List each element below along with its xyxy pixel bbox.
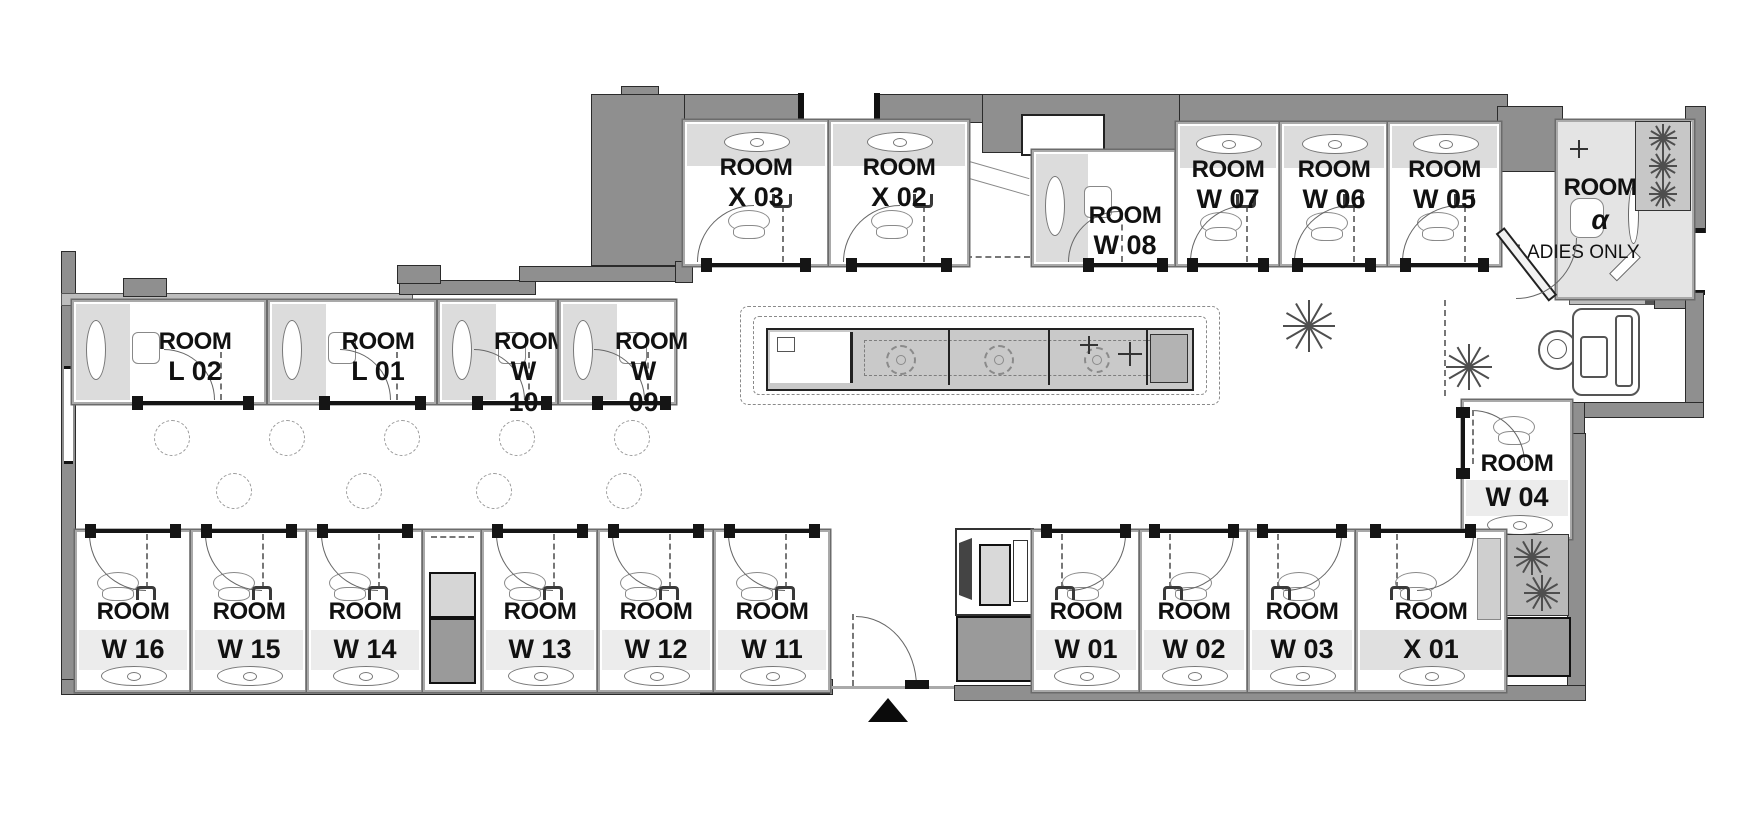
table-circle [216,473,252,509]
survey-cross-icon [1570,140,1588,158]
table-circle [614,420,650,456]
room-w01: ROOM W 01 [1032,530,1140,692]
table-circle [154,420,190,456]
room-label: ROOM [1282,156,1386,184]
utility-closet [423,530,482,692]
dashed-opening [431,536,474,538]
door-swing-arc [697,205,754,262]
desk-icon [724,132,790,152]
sliding-door-track [1407,263,1481,267]
sliding-door-track [92,529,175,533]
table-circle [476,473,512,509]
sliding-door-track [1156,529,1233,533]
room-number: W 05 [1390,184,1499,215]
room-label: ROOM [1464,450,1570,478]
room-w02: ROOM W 02 [1140,530,1248,692]
room-label: ROOM [1390,156,1499,184]
room-number: W 06 [1282,184,1386,215]
room-w03: ROOM W 03 [1248,530,1356,692]
desk-icon [101,666,167,686]
entrance-arrow-icon [868,698,908,722]
room-number: W 03 [1250,634,1354,665]
room-number: W 10 [494,356,553,418]
room-number: X 02 [831,182,967,213]
room-label: ROOM [193,598,305,626]
plant-icon [1446,344,1492,390]
door-leaf [669,534,671,588]
counter-divider [1048,330,1050,385]
ceiling-slope-line [966,177,1030,196]
room-w05: ROOM W 05 [1388,122,1501,266]
table-circle [384,420,420,456]
room-w04: ROOM W 04 [1462,400,1572,539]
door-swing-arc [843,205,900,262]
room-number: W 02 [1142,634,1246,665]
plant-icon [1283,300,1335,352]
desk-icon [452,320,472,380]
counter-end-cabinet [1150,334,1188,383]
desk-icon [1162,666,1228,686]
room-number: W 07 [1178,184,1278,215]
desk-icon [1302,134,1368,154]
desk-icon [217,666,283,686]
wall-step-band-2 [520,267,692,281]
room-label: ROOM [1178,156,1278,184]
desk-icon [740,666,806,686]
entrance-door-arc [856,616,917,687]
room-label: ROOM [77,598,189,626]
door-swing-arc [1069,534,1126,591]
utility-dark-box [956,616,1033,682]
faucet-icon [1080,336,1098,354]
burner-icon [984,345,1014,375]
room-label: ROOM [615,328,672,356]
counter-divider [948,330,950,385]
door-leaf [785,534,787,588]
door-leaf [146,534,148,588]
room-w12: ROOM W 12 [598,530,714,692]
room-label: ROOM [309,598,421,626]
room-number: W 11 [716,634,828,665]
locker-door [979,544,1011,606]
sliding-door-track [326,401,420,405]
speaker-panel-icon [959,538,972,600]
desk-icon [282,320,302,380]
room-w09: ROOM W 09 [559,300,676,404]
desk-icon [1270,666,1336,686]
desk-icon [86,320,106,380]
sliding-door-track [1299,263,1370,267]
room-number: W 08 [1078,230,1172,261]
door-leaf [553,534,555,588]
ceiling-slope-line [966,160,1030,179]
sliding-door-track [324,529,407,533]
utility-dark-box [1506,617,1571,677]
room-number: W 13 [484,634,596,665]
desk-icon [573,320,593,380]
room-label: ROOM [128,328,262,356]
room-w08: ROOM W 08 [1032,150,1176,266]
wall-vestibule-bottom [1572,403,1703,417]
door-swing-arc [1417,534,1474,591]
sliding-door-track [1090,263,1161,267]
door-leaf [1061,534,1063,588]
room-x02: ROOM X 02 [829,120,969,266]
room-l01: ROOM L 01 [268,300,436,404]
desk-icon [1045,176,1065,236]
desk-icon [1196,134,1262,154]
plant-icon [1520,575,1564,611]
room-w10: ROOM W 10 [438,300,557,404]
desk-icon [867,132,933,152]
room-label: ROOM [600,598,712,626]
desk-icon [1399,666,1465,686]
room-l02: ROOM L 02 [72,300,266,404]
sliding-door-track [499,529,582,533]
door-leaf [782,206,784,262]
wall-jog-block [1498,107,1562,171]
room-number: W 01 [1034,634,1138,665]
plant-icon [1643,180,1683,208]
desk-icon [624,666,690,686]
sliding-door-track [139,401,247,405]
wall-parapet-1 [124,279,166,296]
room-label: ROOM [831,154,967,182]
panel [1013,540,1028,602]
wall-parapet-2 [398,266,440,283]
room-number: W 04 [1464,482,1570,513]
door-leaf [262,534,264,588]
table-circle [606,473,642,509]
room-label: ROOM [1142,598,1246,626]
door-leaf [1169,534,1171,588]
planter-box [1506,535,1568,615]
room-number: W 12 [600,634,712,665]
sliding-door-track [1048,529,1125,533]
dashed-opening [966,256,1030,258]
room-label: ROOM [1034,598,1138,626]
room-label: ROOM [1358,598,1504,626]
burner-icon [886,345,916,375]
door-leaf [923,206,925,262]
entrance-hinge [905,680,929,689]
faucet-icon [1118,342,1142,366]
room-x01: ROOM X 01 [1356,530,1506,692]
room-w14: ROOM W 14 [307,530,423,692]
room-w16: ROOM W 16 [75,530,191,692]
table-circle [269,420,305,456]
floor-plan: ROOM X 03 ROOM X 02 ROOM W 08 ROOM W 07 … [0,0,1763,839]
door-leaf [1277,534,1279,588]
room-label: ROOM [1250,598,1354,626]
entry-vestibule [955,528,1034,616]
room-label: ROOM [324,328,432,356]
wall-corner-block [592,95,684,265]
sliding-door-track [708,263,805,267]
kitchen-counter [766,328,1194,391]
room-w15: ROOM W 15 [191,530,307,692]
desk-icon [1413,134,1479,154]
room-label: ROOM [716,598,828,626]
plant-icon [1643,124,1683,152]
room-number: L 01 [324,356,432,387]
sliding-door-track [853,263,946,267]
desk-icon [333,666,399,686]
room-w11: ROOM W 11 [714,530,830,692]
utility-light-box [429,572,476,618]
room-number: W 09 [615,356,672,418]
room-number: W 14 [309,634,421,665]
room-label: ROOM [1078,202,1172,230]
sliding-door-track [1194,263,1262,267]
table-circle [346,473,382,509]
counter-divider [1146,330,1148,385]
appliance-control [777,337,795,352]
wall-vestibule-right [1686,293,1703,417]
room-number: X 01 [1358,634,1504,665]
room-label: ROOM [484,598,596,626]
desk-icon [508,666,574,686]
door-leaf [1396,534,1398,588]
room-number: X 03 [685,182,827,213]
massage-chair-icon [1572,308,1640,396]
room-w13: ROOM W 13 [482,530,598,692]
desk-icon [1054,666,1120,686]
utility-dark-box [429,618,476,684]
room-x03: ROOM X 03 [683,120,829,266]
room-w07: ROOM W 07 [1176,122,1280,266]
plant-icon [1510,539,1554,575]
door-leaf [378,534,380,588]
table-circle [499,420,535,456]
door-swing-arc [1177,534,1234,591]
room-number: W 15 [193,634,305,665]
plant-icon [1643,152,1683,180]
sliding-door-track [1377,529,1469,533]
sliding-door-track [1264,529,1341,533]
room-label: ROOM [494,328,553,356]
door-swing-arc [1285,534,1342,591]
entrance-door-leaf [852,614,854,686]
sliding-door-track [208,529,291,533]
sliding-door-track [615,529,698,533]
planter-box [1636,122,1690,210]
sliding-door-track [731,529,814,533]
room-number: W 16 [77,634,189,665]
room-number: L 02 [128,356,262,387]
room-label: ROOM [685,154,827,182]
room-w06: ROOM W 06 [1280,122,1388,266]
